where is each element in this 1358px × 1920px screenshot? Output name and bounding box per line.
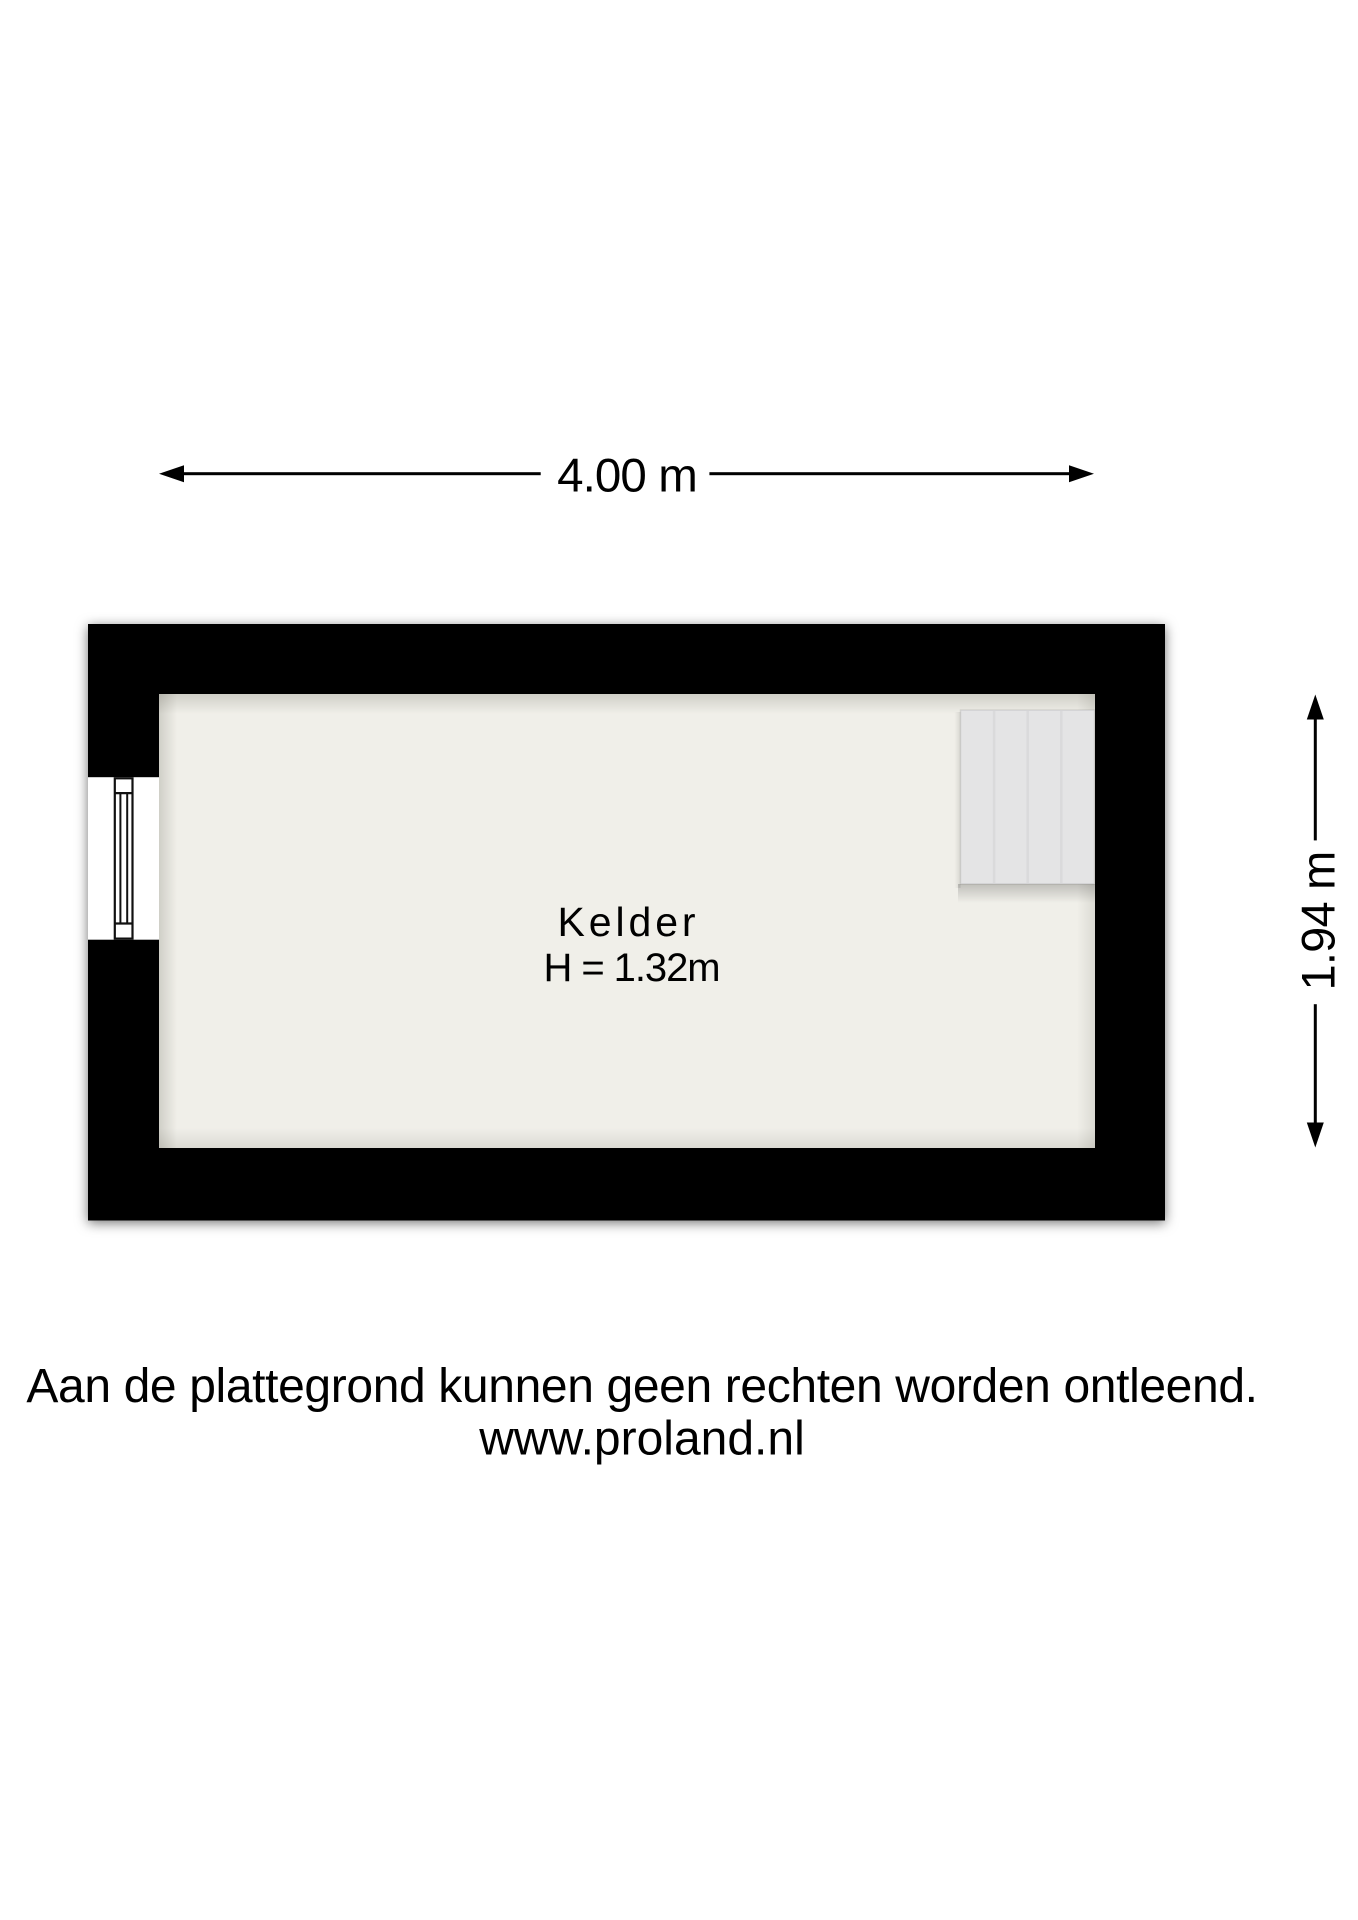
svg-text:1.94 m: 1.94 m [1292,852,1345,991]
svg-text:Kelder: Kelder [558,899,700,945]
svg-text:4.00 m: 4.00 m [557,450,697,503]
svg-text:Aan de plattegrond kunnen geen: Aan de plattegrond kunnen geen rechten w… [26,1360,1257,1413]
svg-text:www.proland.nl: www.proland.nl [478,1413,805,1466]
svg-text:H = 1.32m: H = 1.32m [543,946,719,990]
